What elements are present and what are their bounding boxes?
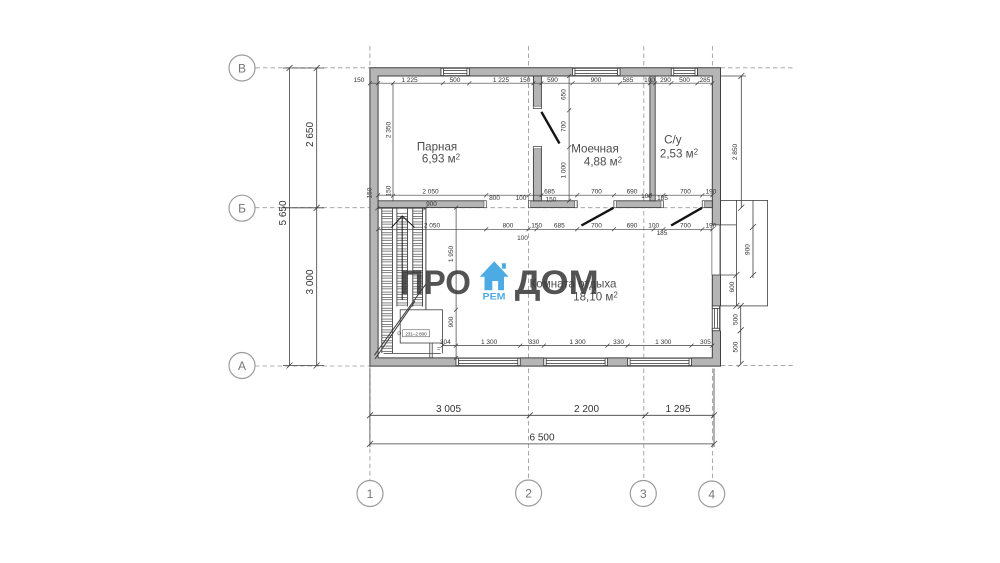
svg-text:1 300: 1 300 xyxy=(655,339,672,346)
svg-text:ДОМ: ДОМ xyxy=(515,264,599,302)
svg-text:С/у: С/у xyxy=(664,133,682,146)
svg-text:1 295: 1 295 xyxy=(665,404,690,415)
svg-text:600: 600 xyxy=(729,281,736,292)
svg-text:100: 100 xyxy=(644,77,655,84)
svg-text:500: 500 xyxy=(733,341,740,352)
svg-text:585: 585 xyxy=(623,77,634,84)
svg-text:100: 100 xyxy=(648,222,659,229)
svg-text:2 200: 2 200 xyxy=(574,404,599,415)
svg-text:=: = xyxy=(437,347,440,353)
svg-text:690: 690 xyxy=(627,189,638,196)
svg-text:А: А xyxy=(238,359,246,373)
svg-text:700: 700 xyxy=(561,121,568,132)
svg-text:900: 900 xyxy=(426,201,437,208)
svg-text:100: 100 xyxy=(517,235,528,242)
svg-text:2 050: 2 050 xyxy=(422,188,439,195)
svg-text:5 650: 5 650 xyxy=(278,200,289,225)
svg-text:900: 900 xyxy=(591,77,602,84)
svg-text:1 225: 1 225 xyxy=(401,77,418,84)
svg-text:6 500: 6 500 xyxy=(529,433,554,444)
svg-text:190: 190 xyxy=(706,222,717,229)
svg-text:4: 4 xyxy=(708,488,715,502)
svg-text:305: 305 xyxy=(700,339,711,346)
svg-text:150: 150 xyxy=(385,185,392,196)
svg-text:Моечная: Моечная xyxy=(571,143,618,156)
svg-text:В: В xyxy=(238,62,246,76)
svg-text:2: 2 xyxy=(525,487,532,501)
svg-text:700: 700 xyxy=(591,222,602,229)
svg-text:1 000: 1 000 xyxy=(561,162,568,179)
svg-text:3: 3 xyxy=(640,487,647,501)
svg-text:1: 1 xyxy=(367,487,374,501)
svg-text:100: 100 xyxy=(641,193,652,200)
svg-text:304: 304 xyxy=(440,339,451,346)
svg-text:290: 290 xyxy=(660,77,671,84)
svg-text:800: 800 xyxy=(503,222,514,229)
svg-text:190: 190 xyxy=(706,189,717,196)
svg-text:900: 900 xyxy=(745,244,752,255)
svg-text:3 005: 3 005 xyxy=(436,404,461,415)
svg-text:2 350: 2 350 xyxy=(385,121,392,138)
svg-text:150: 150 xyxy=(367,187,374,198)
svg-text:2 850: 2 850 xyxy=(732,143,739,160)
svg-text:590: 590 xyxy=(547,77,558,84)
svg-text:150: 150 xyxy=(531,222,542,229)
svg-text:231–2 800: 231–2 800 xyxy=(405,331,427,336)
svg-text:685: 685 xyxy=(544,189,555,196)
svg-text:Б: Б xyxy=(238,202,246,216)
svg-text:700: 700 xyxy=(680,189,691,196)
svg-text:100: 100 xyxy=(516,195,527,202)
svg-text:330: 330 xyxy=(613,339,624,346)
svg-text:2 650: 2 650 xyxy=(305,122,316,147)
svg-text:700: 700 xyxy=(591,189,602,196)
svg-text:2,53 м2: 2,53 м2 xyxy=(660,147,699,160)
svg-text:1 300: 1 300 xyxy=(481,339,498,346)
svg-text:150: 150 xyxy=(546,197,557,204)
svg-text:6,93 м2: 6,93 м2 xyxy=(422,153,461,166)
svg-text:285: 285 xyxy=(700,77,711,84)
svg-text:900: 900 xyxy=(448,316,455,327)
svg-text:ПРО: ПРО xyxy=(400,264,471,302)
svg-text:2 050: 2 050 xyxy=(424,222,441,229)
svg-text:3 000: 3 000 xyxy=(305,269,316,294)
svg-text:185: 185 xyxy=(657,230,668,237)
svg-text:800: 800 xyxy=(489,195,500,202)
svg-text:1 300: 1 300 xyxy=(569,339,586,346)
svg-text:150: 150 xyxy=(520,77,531,84)
svg-text:690: 690 xyxy=(627,222,638,229)
svg-text:1 950: 1 950 xyxy=(448,245,455,262)
svg-text:4,88 м2: 4,88 м2 xyxy=(584,156,623,169)
svg-text:150: 150 xyxy=(354,77,365,84)
svg-text:685: 685 xyxy=(554,222,565,229)
svg-text:500: 500 xyxy=(450,77,461,84)
svg-text:330: 330 xyxy=(529,339,540,346)
svg-text:500: 500 xyxy=(733,314,740,325)
svg-text:500: 500 xyxy=(679,77,690,84)
svg-text:РЕМ: РЕМ xyxy=(483,292,506,302)
svg-text:1 225: 1 225 xyxy=(493,77,510,84)
svg-text:700: 700 xyxy=(680,222,691,229)
svg-text:650: 650 xyxy=(561,89,568,100)
svg-text:185: 185 xyxy=(657,195,668,202)
